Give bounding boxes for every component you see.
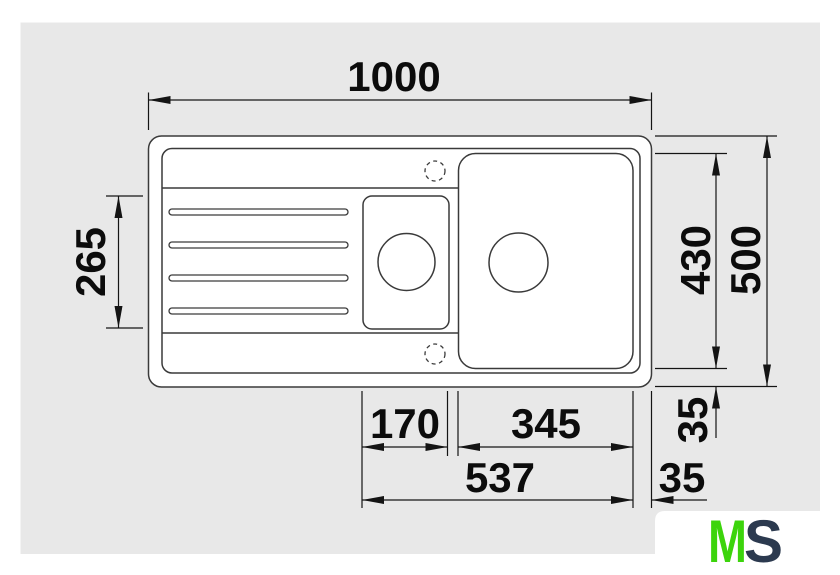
- sink-technical-drawing: 1000 265 430 500 35 170 345 537 35 M S: [0, 0, 840, 575]
- bowl-depth-label: 430: [672, 225, 719, 295]
- overall-width-label: 1000: [347, 53, 440, 100]
- sink-outline-group: [149, 136, 652, 387]
- logo-letter-m: M: [708, 508, 747, 575]
- main-bowl-width-label: 345: [511, 400, 581, 447]
- overall-depth-label: 500: [722, 225, 769, 295]
- sink-outer-edge: [149, 136, 652, 387]
- bowls-total-width-label: 537: [465, 454, 535, 501]
- edge-offset-horizontal-label: 35: [659, 454, 706, 501]
- drainboard-recess-label: 265: [67, 227, 114, 297]
- logo-group: M S: [655, 508, 840, 575]
- logo-letter-s: S: [744, 508, 783, 575]
- screenshot-root: 1000 265 430 500 35 170 345 537 35 M S: [0, 0, 840, 575]
- edge-offset-vertical-label: 35: [669, 397, 716, 444]
- small-bowl-width-label: 170: [370, 400, 440, 447]
